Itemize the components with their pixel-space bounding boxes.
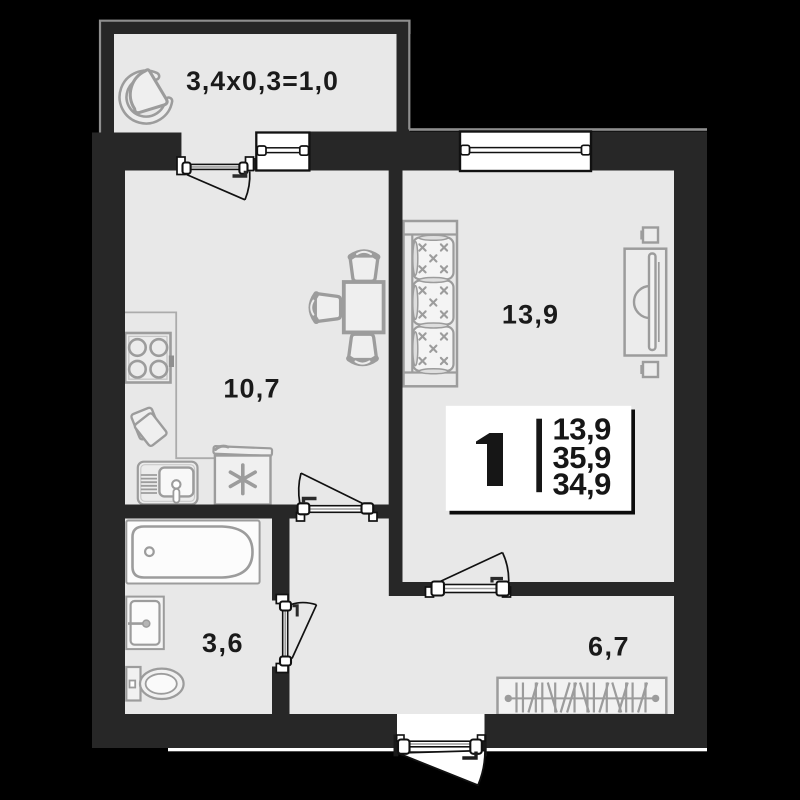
svg-text:10,7: 10,7 [223,374,280,404]
svg-text:34,9: 34,9 [553,466,612,501]
svg-text:13,9: 13,9 [502,300,559,330]
svg-text:3,4x0,3=1,0: 3,4x0,3=1,0 [186,66,339,96]
svg-text:6,7: 6,7 [588,632,630,662]
svg-text:3,6: 3,6 [202,628,244,658]
